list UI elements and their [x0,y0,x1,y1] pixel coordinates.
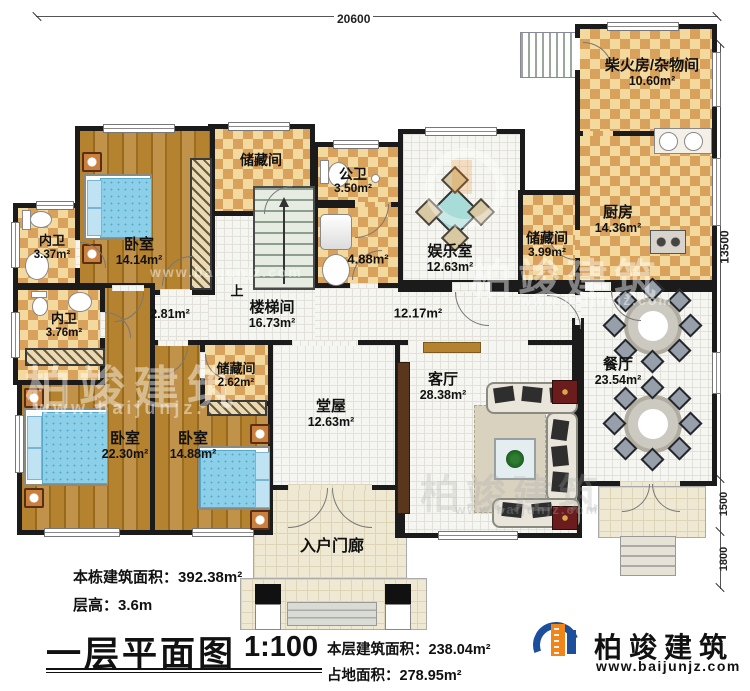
nightstand-icon [250,510,270,530]
bath-partition-wall [313,200,355,208]
exterior-equipment-pad [520,32,576,78]
floor-height-row: 层高：3.6m [73,594,152,615]
nightstand-icon [82,152,102,172]
window [425,127,497,136]
entry-porch-floor [253,488,407,582]
label-stairs-up: 上 [230,285,243,300]
room-area: 14.36m² [595,221,642,235]
room-name: 餐厅 [595,356,642,373]
label-public-bath: 公卫 3.50m² [334,166,372,196]
right-dimension-bottom: 1800 [718,547,730,571]
pedestal-sink-icon [322,254,350,286]
window [15,415,24,473]
footprint-value: 278.95m² [400,668,462,684]
title-underline [46,668,322,673]
room-name: 卧室 [102,430,149,447]
label-living: 客厅 28.38m² [420,371,467,403]
toilet-icon [30,211,52,228]
bed-blanket [100,178,152,238]
bed-pillow [87,180,102,208]
opening-main-hall [292,340,358,346]
label-ensuite-mid: 内卫 3.76m² [46,312,82,340]
room-name: 厨房 [595,204,642,221]
label-storage-right: 储藏间 3.99m² [526,230,568,260]
label-main-hall: 堂屋 12.63m² [308,398,355,430]
side-terrace-floor [598,486,706,538]
kitchen-sink-icon [684,132,703,151]
window [228,122,290,131]
room-area: 3.99m² [526,246,568,260]
window [11,312,20,358]
door-gap-firewood [575,38,580,70]
stair-arrow-line [283,206,285,284]
room-name: 公卫 [334,166,372,182]
room-name: 卧室 [170,430,217,447]
room-name: 储藏间 [216,362,255,377]
scale-label: 1:100 [244,631,318,664]
door-gap-utility [350,283,378,288]
entry-porch-steps [287,602,377,626]
label-utility-area: 4.88m² [347,253,388,268]
room-name: 柴火房/杂物间 [605,57,699,74]
window [36,201,74,210]
room-area: 3.50m² [334,182,372,196]
label-bedroom-left: 卧室 22.30m² [102,430,149,462]
logo-url: www.baijunjz.com [596,658,741,674]
top-dimension-line [36,16,718,17]
room-area: 14.14m² [116,253,163,267]
floor-height-label: 层高： [73,597,118,614]
wardrobe [190,158,212,290]
sofa-cushion [551,445,569,467]
side-cabinet-icon [552,506,578,530]
room-area: 23.54m² [595,373,642,387]
door-gap-bedroom-top [160,289,192,295]
floor-area-row: 本层建筑面积：238.04m² [327,638,491,659]
sofa-cushion [501,502,522,518]
window [11,222,20,268]
right-dimension-main: 13500 [718,230,732,263]
sofa-cushion [551,419,570,441]
room-area: 10.60m² [605,74,699,88]
logo-building-icon [551,624,565,656]
nightstand-icon [24,488,44,508]
wardrobe [207,400,267,416]
window [712,52,721,107]
washing-machine-icon [320,214,352,250]
logo-building-icon [567,630,576,654]
window [192,528,254,537]
label-stair-hall: 楼梯间 16.73m² [249,299,296,331]
door-gap-kitchen [585,282,611,291]
label-storage-center: 储藏间 2.62m² [216,362,255,390]
right-dimension-mid: 1500 [718,492,730,516]
label-dining: 餐厅 23.54m² [595,356,642,388]
room-area: 22.30m² [102,447,149,461]
nightstand-icon [24,388,44,408]
room-name: 内卫 [46,312,82,327]
sofa-cushion [493,386,515,404]
room-area: 14.88m² [170,447,217,461]
nightstand-icon [250,424,270,444]
label-hall-area: 12.17m² [394,307,442,322]
label-ensuite-top: 内卫 3.37m² [34,234,70,262]
wardrobe [25,348,105,366]
room-name: 客厅 [420,371,467,388]
sink-icon [68,292,92,312]
floor-drain-icon [371,174,380,183]
room-name: 楼梯间 [249,299,296,316]
label-porch: 入户门廊 [300,538,364,556]
label-storage-top: 储藏间 [240,152,282,168]
bed-blanket [42,412,108,484]
building-area-row: 本栋建筑面积：392.38m² [73,566,242,587]
tv-cabinet-icon [397,362,410,514]
stove-icon [650,230,686,254]
door-gap-firewood-kitchen [583,131,613,136]
room-area: 16.73m² [249,316,296,330]
floor-area-value: 238.04m² [429,642,491,658]
label-bedroom-top: 卧室 14.14m² [116,236,163,268]
window [607,22,679,31]
plant-icon [506,450,524,468]
room-area: 3.37m² [34,249,70,262]
porch-column [385,584,411,604]
sofa-cushion [551,471,569,492]
company-logo [531,620,587,672]
label-kitchen: 厨房 14.36m² [595,204,642,236]
footprint-row: 占地面积：278.95m² [327,664,462,685]
room-area: 3.76m² [46,327,82,340]
room-area: 12.63m² [427,260,474,274]
bed-pillow [27,448,42,480]
sofa-cushion [521,386,542,403]
bed-pillow [255,452,270,480]
window [712,352,721,394]
room-name: 内卫 [34,234,70,249]
label-firewood: 柴火房/杂物间 10.60m² [605,57,699,89]
window [103,124,175,133]
bed-pillow [87,208,102,236]
console-table-icon [423,342,481,353]
porch-column-base [255,604,281,630]
label-bedroom-mid: 卧室 14.88m² [170,430,217,462]
bed-pillow [27,416,42,448]
window [438,531,518,540]
dining-table-center [638,409,668,439]
footprint-label: 占地面积： [327,668,400,684]
room-area: 12.63m² [308,415,355,429]
porch-column [255,584,281,604]
window [333,140,379,149]
floor-area-label: 本层建筑面积： [327,642,429,658]
hall-north-wall [398,280,717,292]
door-gap-bedroom-left [112,285,144,291]
building-area-value: 392.38m² [178,569,242,586]
label-entertainment: 娱乐室 12.63m² [427,243,474,275]
building-area-label: 本栋建筑面积： [73,569,178,586]
side-terrace-steps [620,536,676,576]
room-name: 卧室 [116,236,163,253]
kitchen-sink-icon [659,132,678,151]
room-name: 储藏间 [526,230,568,246]
label-hall-west-area: 2.81m² [150,307,190,321]
window [712,158,721,226]
floor-plan-canvas: 20600 13500 1500 1800 [0,0,750,691]
top-dimension-label: 20600 [334,12,373,26]
porch-column-base [385,604,411,630]
room-name: 娱乐室 [427,243,474,260]
floor-height-value: 3.6m [118,597,152,614]
bed-pillow [255,480,270,508]
window [44,528,120,537]
door-gap-entertainment [452,282,490,292]
room-area: 28.38m² [420,388,467,402]
side-cabinet-icon [552,380,578,404]
room-area: 2.62m² [216,377,255,390]
sofa-cushion [531,502,553,518]
dining-table-center [638,311,668,341]
room-name: 堂屋 [308,398,355,415]
